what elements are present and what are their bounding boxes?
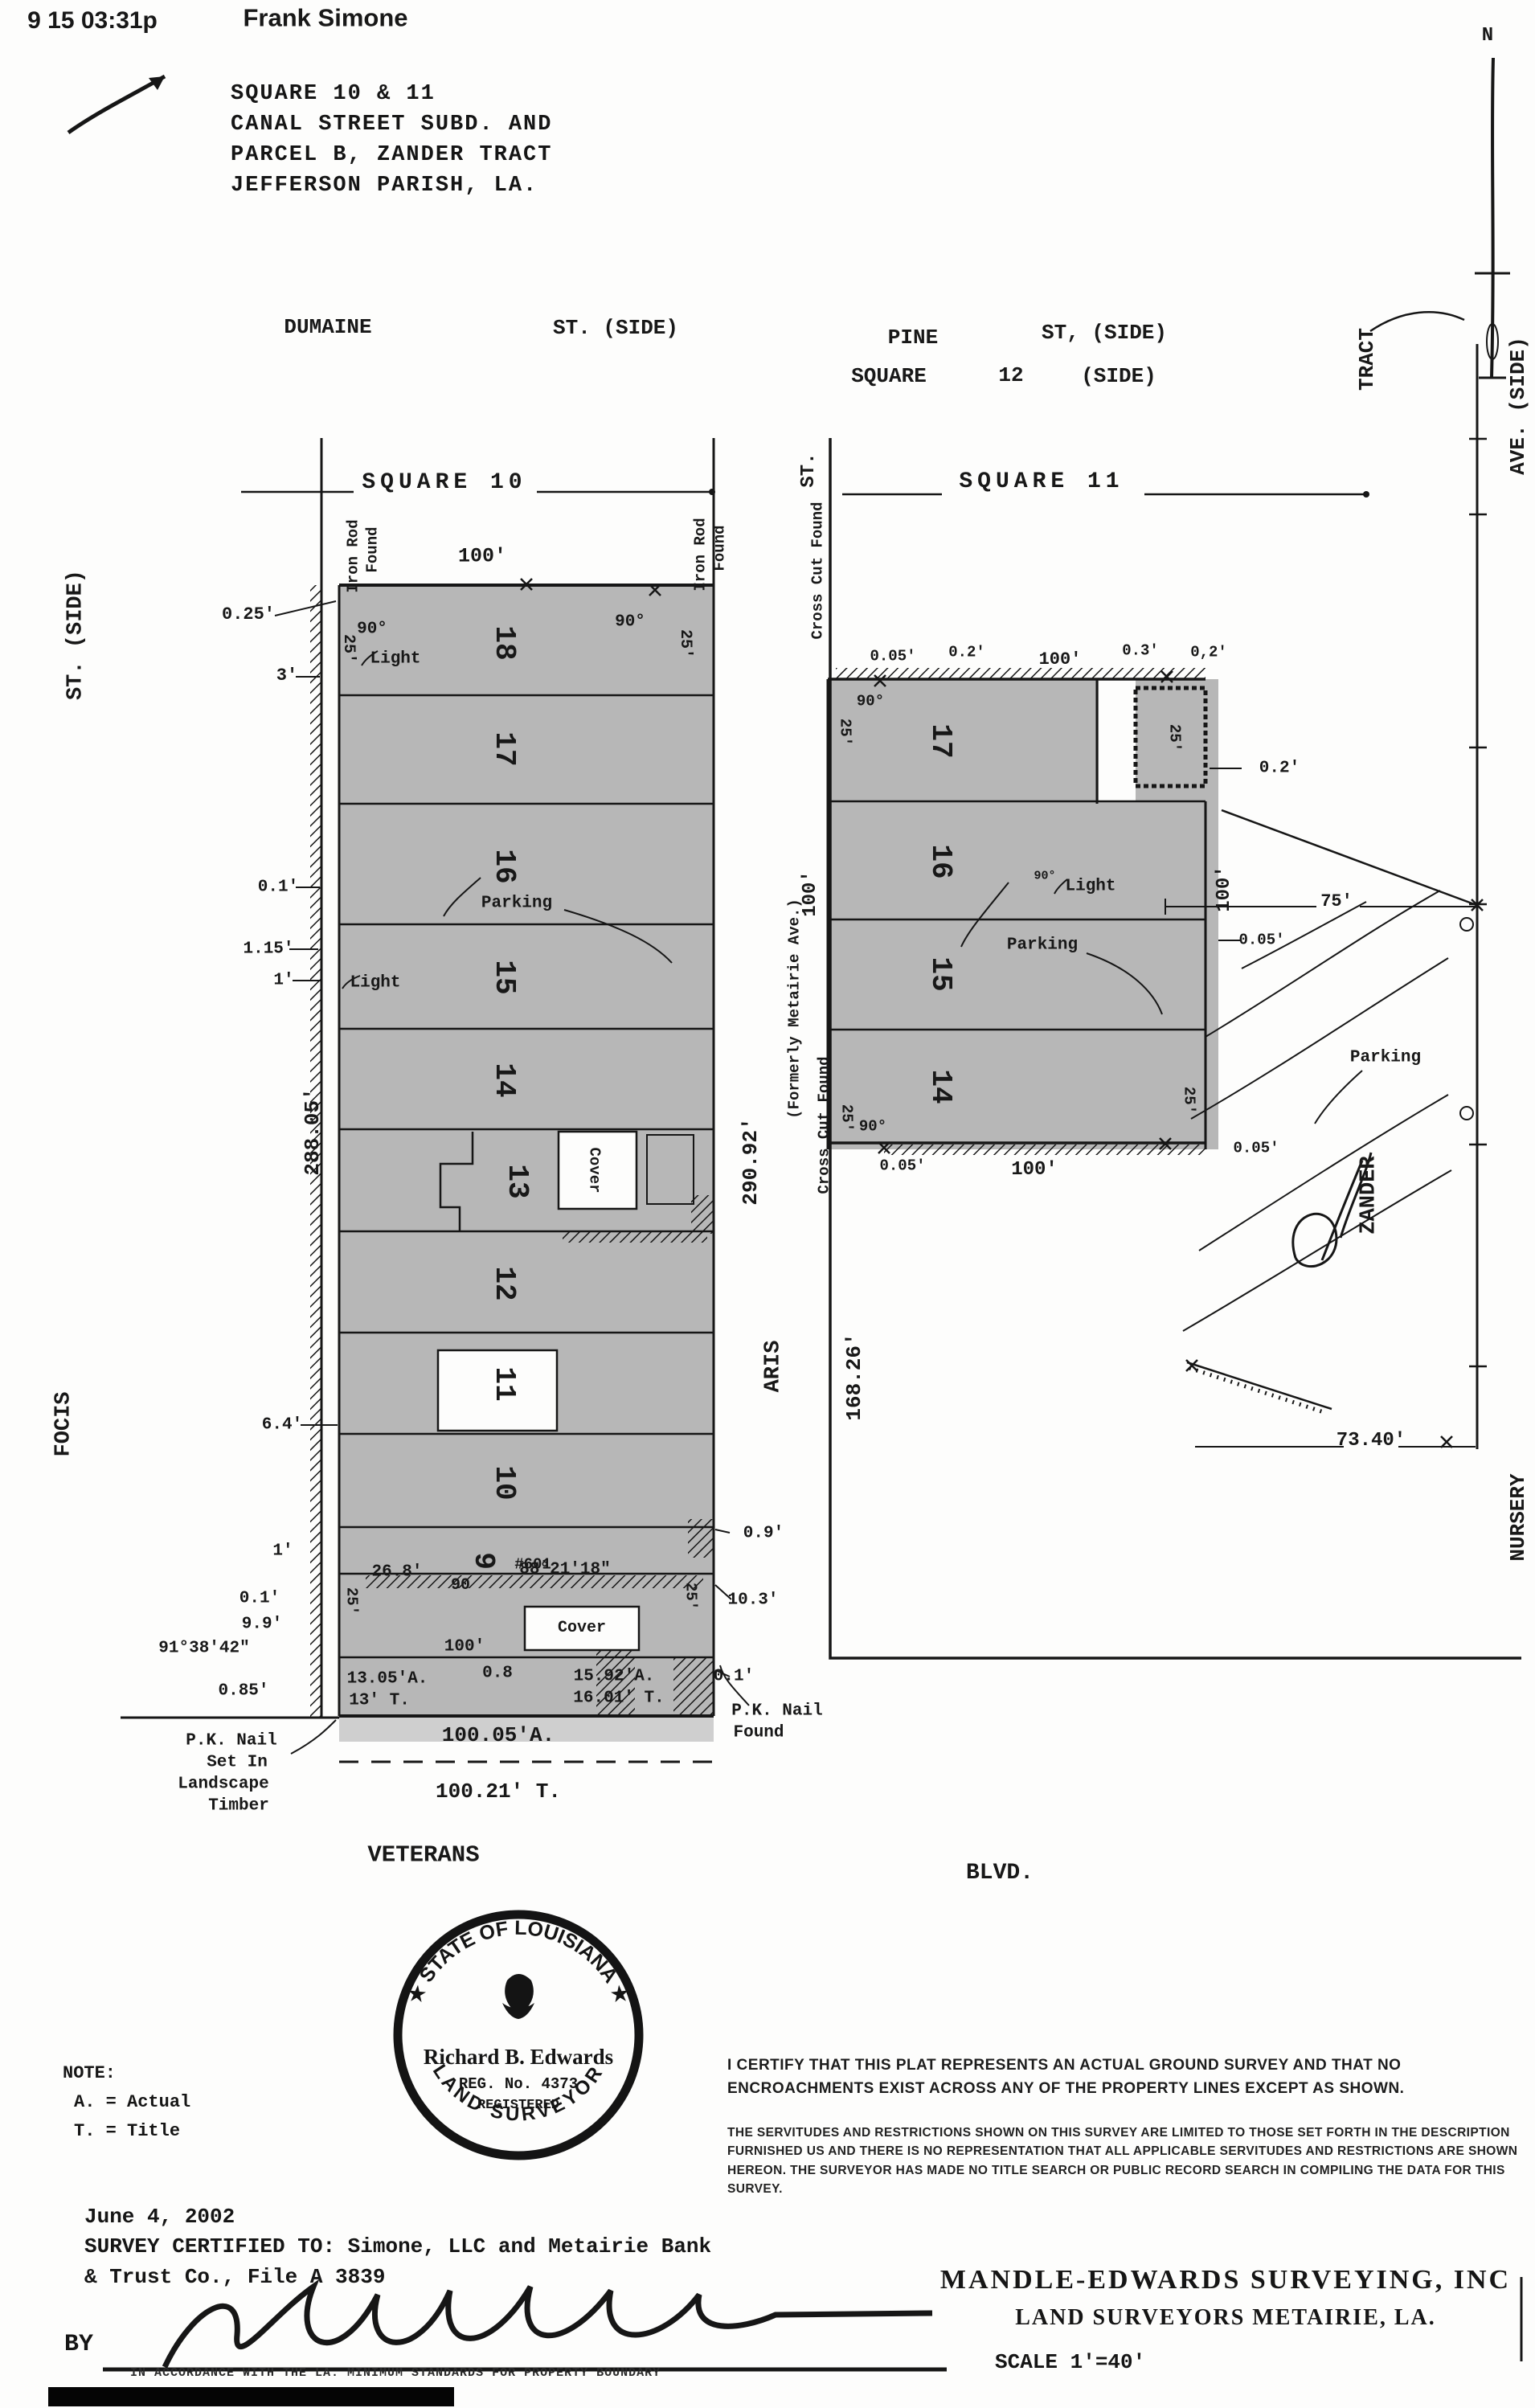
sq11-dim-100-t: 100' bbox=[1039, 651, 1082, 669]
sq10-cover-upper: Cover bbox=[587, 1147, 602, 1193]
street-focis: FOCIS bbox=[54, 1391, 76, 1456]
zander-tract-label: TRACT bbox=[1357, 328, 1377, 391]
sq10-lot-13: 13 bbox=[502, 1164, 531, 1198]
sq10-lot-9: 9 bbox=[469, 1552, 497, 1570]
sq10-dim-26-8: 26.8' bbox=[371, 1564, 422, 1581]
sq11-dim-100-r: 100' bbox=[1215, 866, 1234, 912]
iron-rod-left-1: Iron Rod bbox=[346, 519, 362, 592]
iron-rod-left-2: Found bbox=[366, 526, 381, 572]
zander-label: ZANDER bbox=[1359, 1156, 1381, 1234]
pk-nail-set-1: P.K. Nail bbox=[186, 1733, 276, 1750]
sq10-cover-lower: Cover bbox=[558, 1620, 606, 1636]
street-veterans: VETERANS bbox=[367, 1844, 479, 1867]
sq11-lot-16: 16 bbox=[926, 844, 955, 878]
sq10-dim-1-b: 1' bbox=[272, 1543, 293, 1560]
sq10-dim-15-92: 15.92'A. bbox=[574, 1669, 655, 1685]
sq10-dim-100-05: 100.05'A. bbox=[442, 1725, 555, 1746]
square12-label: SQUARE bbox=[851, 366, 927, 387]
tract-dim-73-40: 73.40' bbox=[1336, 1431, 1406, 1451]
sq11-angle-90-light: 90° bbox=[1034, 870, 1055, 883]
fax-timestamp: 9 15 03:31p bbox=[27, 9, 158, 33]
sq10-lot-12: 12 bbox=[489, 1266, 518, 1300]
tract-dim-75: 75' bbox=[1320, 893, 1353, 911]
sq10-dim-100-top: 100' bbox=[458, 547, 506, 567]
sq10-lot-18: 18 bbox=[489, 625, 518, 660]
sq11-dim-0-3-t: 0.3' bbox=[1122, 644, 1159, 659]
sq11-dim-0-2-r: 0.2' bbox=[1259, 760, 1300, 777]
iron-rod-right-2: Found bbox=[713, 525, 728, 571]
sq11-lot-14: 14 bbox=[926, 1069, 955, 1104]
sq10-dim-0-1-a: 0.1' bbox=[258, 879, 298, 896]
pk-nail-found-1: P.K. Nail bbox=[731, 1703, 822, 1720]
sq10-angle-91-38-42: 91°38'42" bbox=[158, 1640, 249, 1657]
sq10-dim-100-mid: 100' bbox=[444, 1639, 485, 1656]
fax-sender: Frank Simone bbox=[244, 6, 408, 31]
sq11-dim-0-05-t: 0.05' bbox=[870, 649, 915, 665]
sq10-lot-16: 16 bbox=[489, 849, 518, 883]
sq11-dim-25-box: 25' bbox=[1167, 724, 1182, 751]
sq11-dim-0-2-t1: 0.2' bbox=[948, 645, 985, 661]
sq10-dim-0-85: 0.85' bbox=[218, 1683, 268, 1700]
sq10-light-mid: Light bbox=[350, 975, 400, 992]
sq10-dim-3: 3' bbox=[276, 667, 297, 685]
sq10-lot-17: 17 bbox=[489, 731, 518, 766]
street-pine: PINE bbox=[888, 327, 938, 348]
street-pine-side: ST, (SIDE) bbox=[1042, 322, 1167, 343]
aris-formerly: (Formerly Metairie Ave.) bbox=[788, 899, 803, 1119]
pk-nail-found-2: Found bbox=[733, 1725, 784, 1742]
sq10-light-top: Light bbox=[370, 651, 420, 668]
sq10-dim-25-tl: 25' bbox=[340, 634, 356, 663]
sq11-angle-90-tl: 90° bbox=[857, 694, 884, 710]
sq10-dim-25-br: 25' bbox=[683, 1583, 698, 1610]
sq10-dim-0-8: 0.8 bbox=[482, 1665, 513, 1682]
sq10-dim-290-92: 290.92' bbox=[740, 1117, 761, 1205]
sq10-lot-14: 14 bbox=[489, 1063, 518, 1097]
sq10-dim-1-a: 1' bbox=[273, 973, 293, 989]
fax-survey-plat-page: ★ STATE OF LOUISIANA ★ LAND SURVEYOR Ric… bbox=[0, 0, 1535, 2408]
sq10-dim-25-tr: 25' bbox=[677, 629, 693, 658]
north-label: N bbox=[1482, 27, 1493, 46]
street-blvd: BLVD. bbox=[966, 1862, 1034, 1885]
cross-cut-found-top: Cross Cut Found bbox=[811, 502, 826, 639]
sq11-lot-17: 17 bbox=[926, 723, 955, 758]
tract-parking: Parking bbox=[1350, 1050, 1421, 1067]
square10-title: SQUARE 10 bbox=[362, 472, 526, 494]
sq11-dim-25-bl: 25' bbox=[839, 1104, 854, 1132]
sq10-dim-6-4: 6.4' bbox=[262, 1417, 302, 1434]
square12-side: (SIDE) bbox=[1081, 366, 1156, 387]
sq11-dim-0-05-br: 0.05' bbox=[1233, 1141, 1279, 1157]
sq10-dim-9-9: 9.9' bbox=[242, 1616, 282, 1633]
sq11-lot-15: 15 bbox=[926, 956, 955, 991]
sq10-dim-25-bl: 25' bbox=[344, 1587, 359, 1615]
sq11-dim-25-tl: 25' bbox=[837, 719, 853, 746]
sq10-dim-16-01: 16.01' T. bbox=[573, 1690, 664, 1707]
sq10-dim-1-15: 1.15' bbox=[243, 941, 293, 958]
sq10-angle-88-21-18: 88°21'18" bbox=[519, 1562, 610, 1579]
sq10-dim-0-25: 0.25' bbox=[222, 606, 275, 624]
street-dumaine: DUMAINE bbox=[284, 317, 371, 338]
sq10-dim-13-t: 13' T. bbox=[349, 1693, 410, 1710]
sq10-lot-10: 10 bbox=[489, 1465, 518, 1500]
street-aris: ARIS bbox=[763, 1341, 785, 1393]
sq10-angle-90-tl: 90° bbox=[357, 621, 387, 638]
sq11-dim-0-2-t2: 0,2' bbox=[1190, 645, 1227, 661]
sq10-dim-0-1-b: 0.1' bbox=[239, 1591, 280, 1607]
sq11-dim-0-05-bl: 0.05' bbox=[879, 1159, 925, 1174]
sq10-lot-15: 15 bbox=[489, 960, 518, 994]
sq11-dim-25-br: 25' bbox=[1181, 1087, 1197, 1114]
sq10-angle-90-tr: 90° bbox=[615, 614, 645, 631]
street-dumaine-side: ST. (SIDE) bbox=[553, 317, 678, 338]
cross-cut-found-bottom: Cross Cut Found bbox=[817, 1056, 833, 1194]
sq11-parking: Parking bbox=[1007, 937, 1078, 954]
sq11-dim-100-b: 100' bbox=[1011, 1161, 1058, 1180]
square11-title: SQUARE 11 bbox=[959, 471, 1124, 493]
sq10-parking: Parking bbox=[481, 895, 552, 912]
square12-number: 12 bbox=[998, 365, 1023, 386]
pk-nail-set-4: Timber bbox=[208, 1798, 269, 1815]
street-ave-side: AVE. (SIDE) bbox=[1508, 337, 1529, 475]
sq10-dim-10-3: 10.3' bbox=[727, 1592, 778, 1609]
sq10-dim-0-1-c: 0.1' bbox=[714, 1669, 754, 1685]
aris-st: ST. bbox=[800, 453, 819, 487]
sq10-dim-288-05: 288.05' bbox=[302, 1087, 323, 1175]
sq10-dim-0-9: 0.9' bbox=[743, 1525, 784, 1542]
sq10-dim-13-05: 13.05'A. bbox=[347, 1671, 428, 1688]
sq11-angle-90-bl: 90° bbox=[859, 1120, 886, 1135]
sq11-dim-100-l: 100' bbox=[801, 870, 821, 917]
sq10-dim-100-21: 100.21' T. bbox=[436, 1781, 561, 1802]
pk-nail-set-2: Set In bbox=[207, 1755, 268, 1771]
sq10-lot-11: 11 bbox=[489, 1366, 518, 1401]
plat-labels-layer: 9 15 03:31pFrank SimoneDUMAINEST. (SIDE)… bbox=[0, 0, 1535, 2408]
sq11-dim-0-05-mr: 0.05' bbox=[1238, 933, 1284, 948]
iron-rod-right-1: Iron Rod bbox=[694, 518, 709, 591]
pk-nail-set-3: Landscape bbox=[178, 1776, 268, 1793]
sq10-num-90: 90 bbox=[451, 1578, 470, 1594]
street-focis-st-side: ST. (SIDE) bbox=[66, 570, 88, 700]
dim-168-26: 168.26' bbox=[844, 1333, 865, 1420]
street-nursery: NURSERY bbox=[1508, 1473, 1529, 1561]
sq11-light: Light bbox=[1065, 878, 1115, 895]
